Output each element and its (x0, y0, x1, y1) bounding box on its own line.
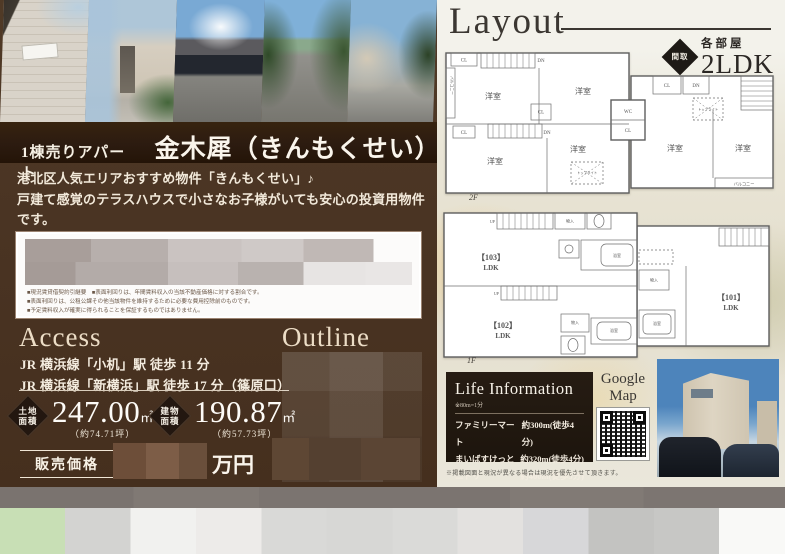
plan-label-dn: DN (692, 84, 700, 89)
plan-label-monoire: 物入 (650, 277, 658, 283)
description-line-1: 港北区人気エリアおすすめ物件「きんもくせい」♪ (17, 169, 429, 190)
life-info-row: ファミリーマート 約300m(徒歩4分) (455, 417, 584, 451)
building-area-unit: ㎡ (282, 410, 295, 425)
price-label: 販売価格 (20, 450, 114, 478)
plan-label-monoire: 物入 (571, 319, 579, 325)
disclaimer-text: ■現況賃貸借契約引継要 ■表面利回りは、年間賃料収入の当該不動産価格に対する割合… (25, 289, 412, 317)
access-line-1: JR 横浜線「小机」駅 徒歩 11 分 (20, 355, 290, 376)
divider-rule (19, 390, 289, 391)
price-unit: 万円 (212, 449, 254, 479)
google-map-label: Google Map (594, 371, 652, 406)
life-info-note: ※80m=1分 (455, 400, 584, 409)
redacted-mosaic-row-2 (25, 262, 412, 285)
building-area-value: 190.87 (194, 394, 282, 429)
qr-eye-icon (600, 411, 613, 424)
poi-name: まいばすけっと (455, 451, 515, 468)
building-badge-line-1: 建物 (160, 406, 179, 416)
disclaimer-line-3: ■予定賃料収入が確実に得られることを保証するものではありません。 (27, 307, 412, 316)
plan-label-balcony: バルコニー (450, 76, 455, 95)
plan-label-dn: DN (543, 131, 551, 136)
property-photo-exterior-sign (0, 0, 89, 122)
redacted-mosaic-row-1 (25, 239, 412, 262)
photo-strip (0, 0, 437, 122)
plan-label-cl: CL (461, 131, 467, 136)
plan-label-wc: WC (624, 110, 633, 115)
building-photo-window (691, 389, 713, 398)
parked-car (723, 444, 779, 477)
life-info-title: Life Information (455, 379, 584, 399)
building-area-group: 建物 面積 190.87㎡ （約57.73坪） (148, 394, 295, 440)
poi-name: ファミリーマート (455, 417, 522, 451)
poi-distance: 約320m(徒歩4分) (520, 451, 584, 468)
disclaimer-line-1: ■現況賃貸借契約引継要 ■表面利回りは、年間賃料収入の当該不動産価格に対する割合… (27, 289, 412, 298)
plan-label-bath: 浴室 (613, 252, 621, 258)
outline-heading: Outline (282, 322, 370, 353)
property-photo-street (261, 0, 351, 122)
plan-label-up: UP (494, 291, 500, 296)
plan-unit-ldk: LDK (495, 332, 511, 340)
land-badge-line-2: 面積 (18, 416, 37, 426)
drawing-disclaimer: ※掲載図面と現況が異なる場合は現況を優先させて頂きます。 (446, 468, 622, 477)
plan-room-yoshitsu: 洋室 (485, 91, 501, 101)
access-heading: Access (19, 322, 101, 353)
plan-room-yoshitsu: 洋室 (667, 143, 683, 153)
qr-eye-icon (633, 411, 646, 424)
property-photo-entrance (85, 0, 177, 122)
plan-label-bath: 浴室 (610, 327, 618, 333)
description-line-2: 戸建て感覚のテラスハウスで小さなお子様がいても安心の投資用物件です。 (17, 190, 429, 231)
plan-label-toplight: トップライト (577, 170, 597, 175)
plan-label-dn: DN (537, 59, 545, 64)
life-information-box: Life Information ※80m=1分 ファミリーマート 約300m(… (446, 372, 593, 462)
plan-label-cl: CL (625, 129, 631, 134)
parked-car (659, 437, 721, 477)
footer-redacted-mosaic (0, 508, 785, 554)
life-info-divider (455, 413, 584, 414)
plan-unit-101: 【101】 (717, 292, 745, 302)
plan-room-yoshitsu: 洋室 (570, 144, 586, 154)
price-redacted-mosaic (113, 443, 207, 479)
floor-label-2f: 2F (469, 193, 478, 202)
plan-label-cl: CL (538, 111, 544, 116)
plan-unit-102: 【102】 (489, 320, 517, 330)
plan-unit-ldk: LDK (483, 264, 499, 272)
plan-room-yoshitsu: 洋室 (487, 156, 503, 166)
building-photo-side (757, 401, 777, 449)
plan-label-bath: 浴室 (653, 320, 661, 326)
right-panel: Layout 間取 各部屋 2LDK (437, 0, 785, 487)
layout-heading-rule (561, 28, 771, 30)
disclaimer-line-2: ■表面利回りは、公租公課その他当該物件を維持するために必要な費用控除前のものです… (27, 298, 412, 307)
land-area-group: 土地 面積 247.00㎡ （約74.71坪） (6, 394, 153, 440)
building-nameplate (21, 42, 58, 60)
land-badge-line-1: 土地 (18, 406, 37, 416)
floorplan-2f: CL DN CL CL DN WC CL CL DN 洋室 洋室 洋室 洋室 洋… (443, 50, 777, 198)
plan-label-monoire: 物入 (566, 218, 574, 224)
flyer-page: 1棟売りアパート 金木犀（きんもくせい） 港北区人気エリアおすすめ物件「きんもく… (0, 0, 785, 554)
plan-room-yoshitsu: 洋室 (575, 86, 591, 96)
google-map-line2: Map (594, 388, 652, 405)
plan-room-yoshitsu: 洋室 (735, 143, 751, 153)
entrance-door (120, 46, 135, 92)
layout-heading: Layout (449, 0, 566, 43)
life-info-row: まいばすけっと 約320m(徒歩4分) (455, 451, 584, 468)
property-name: 金木犀（きんもくせい） (155, 129, 437, 165)
price-redacted-mosaic-2 (272, 438, 420, 480)
plan-label-up: UP (490, 219, 496, 224)
building-area-badge: 建物 面積 (148, 394, 192, 438)
yield-notice-box: ■現況賃貸借契約引継要 ■表面利回りは、年間賃料収入の当該不動産価格に対する割合… (15, 231, 422, 319)
left-panel: 1棟売りアパート 金木犀（きんもくせい） 港北区人気エリアおすすめ物件「きんもく… (0, 0, 437, 487)
property-photo-street-2 (347, 0, 437, 122)
plan-label-toplight: トップライト (698, 107, 718, 112)
plan-label-balcony: バルコニー (734, 182, 755, 187)
footer-gray-bar (0, 487, 785, 508)
floorplan-1f: 【103】 LDK 【102】 LDK 【101】 LDK 物入 UP UP 浴… (441, 210, 775, 360)
floor-label-1f: 1F (467, 356, 476, 365)
poi-distance: 約300m(徒歩4分) (522, 417, 584, 451)
google-map-line1: Google (594, 371, 652, 388)
qr-code-icon (597, 408, 649, 460)
land-area-value: 247.00 (52, 394, 140, 429)
land-area-badge: 土地 面積 (6, 394, 50, 438)
plan-label-cl: CL (664, 84, 670, 89)
building-badge-line-2: 面積 (160, 416, 179, 426)
plan-unit-103: 【103】 (477, 252, 505, 262)
plan-unit-ldk: LDK (723, 304, 739, 312)
qr-eye-icon (600, 444, 613, 457)
building-photo (657, 359, 779, 477)
title-bar: 1棟売りアパート 金木犀（きんもくせい） (0, 122, 437, 163)
property-photo-parking (173, 0, 265, 122)
plan-label-cl: CL (461, 59, 467, 64)
